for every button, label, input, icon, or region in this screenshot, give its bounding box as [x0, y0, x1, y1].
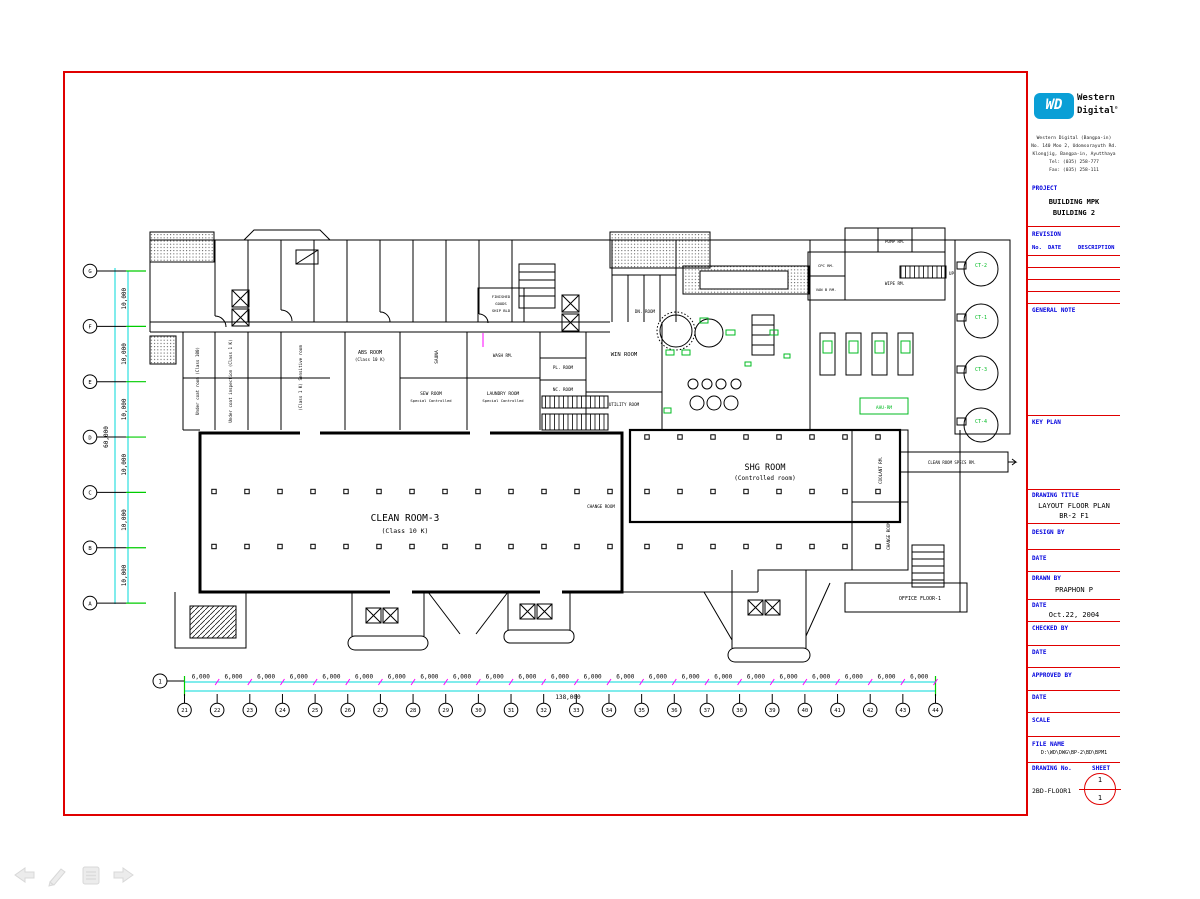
svg-text:6,000: 6,000 [910, 674, 928, 681]
svg-text:6,000: 6,000 [420, 674, 438, 681]
svg-text:24: 24 [279, 708, 286, 714]
svg-text:6,000: 6,000 [551, 674, 569, 681]
svg-text:37: 37 [704, 708, 711, 714]
svg-text:6,000: 6,000 [224, 674, 242, 681]
svg-text:34: 34 [606, 708, 613, 714]
svg-text:D: D [88, 435, 91, 441]
drawing-no-label: DRAWING No. [1032, 765, 1072, 772]
svg-text:6,000: 6,000 [486, 674, 504, 681]
hatched-areas [150, 232, 946, 638]
address-line: No. 140 Moo 2, Udomsorayuth Rd. [1028, 143, 1120, 151]
svg-text:6,000: 6,000 [747, 674, 765, 681]
svg-text:26: 26 [344, 708, 351, 714]
floor-plan-svg: 138,000 60,000 1 GFEDCBA10,00010,00010,0… [0, 0, 1200, 899]
room-label-abs: ABS ROOM [358, 350, 382, 356]
room-label-pump: PUMP RM. [885, 239, 905, 244]
document-icon[interactable] [76, 862, 106, 890]
svg-text:A: A [88, 601, 92, 607]
svg-text:F: F [88, 325, 91, 331]
key-plan-label: KEY PLAN [1032, 419, 1061, 426]
svg-text:E: E [88, 380, 91, 386]
svg-text:6,000: 6,000 [682, 674, 700, 681]
label-cr-specs: CLEAN ROOM SPECS RM. [928, 460, 976, 465]
room-label-sew-sub: Special Controlled [410, 398, 451, 403]
brand-line1: Western [1077, 93, 1117, 103]
room-label-finished-1: FINISHED [492, 294, 511, 299]
room-label-under-coat-room: Under coat room (Class 100) [195, 347, 200, 415]
svg-text:42: 42 [867, 708, 874, 714]
back-arrow-icon[interactable] [8, 862, 38, 890]
svg-text:6,000: 6,000 [649, 674, 667, 681]
row-bubble-1-label: 1 [158, 679, 162, 686]
room-label-pl: PL. ROOM [553, 365, 574, 370]
room-label-win: WIN ROOM [611, 352, 638, 358]
project-line1: BUILDING MPK [1028, 198, 1120, 206]
svg-text:21: 21 [181, 708, 188, 714]
room-label-cpc: CPC RM. [818, 263, 834, 268]
wd-logo: WD [1034, 93, 1074, 119]
svg-text:44: 44 [932, 708, 939, 714]
drawing-no-value: 2BD-FLOOR1 [1032, 787, 1071, 795]
general-note-label: GENERAL NOTE [1032, 307, 1075, 314]
column-markers [212, 435, 880, 549]
checked-by-label: CHECKED BY [1032, 625, 1068, 632]
label-ahu-rm: AHU-RM [876, 405, 893, 411]
svg-text:C: C [88, 491, 91, 497]
room-label-finished-2: GOODS [495, 301, 507, 306]
svg-text:40: 40 [802, 708, 809, 714]
brand-line2: Digital® [1077, 103, 1117, 116]
room-label-change-mid: CHANGE ROOM [587, 504, 615, 509]
dim-total-bottom: 138,000 [555, 694, 581, 701]
room-label-van-b: VAN B RM. [816, 287, 837, 292]
svg-text:6,000: 6,000 [584, 674, 602, 681]
room-label-finished-3: SHIP BLD [492, 308, 511, 313]
room-label-sensitive: (Class 1 K) Sensitive room [298, 345, 303, 411]
svg-text:41: 41 [834, 708, 841, 714]
svg-text:6,000: 6,000 [877, 674, 895, 681]
room-label-office: OFFICE FLOOR-1 [899, 596, 941, 602]
svg-text:6,000: 6,000 [616, 674, 634, 681]
tank-label-ct3: CT-3 [975, 367, 987, 373]
project-line2: BUILDING 2 [1028, 209, 1120, 217]
sheet-number-bottom: 1 [1085, 794, 1115, 802]
room-label-nc: NC. ROOM [553, 387, 574, 392]
svg-text:6,000: 6,000 [322, 674, 340, 681]
rev-col-no: No. [1032, 245, 1042, 251]
room-label-wipe: WIPE RM. [885, 281, 905, 286]
room-label-under-coat-insp: Under coat inspection (Class 1 K) [228, 339, 233, 422]
room-label-shg-sub: (Controlled room) [734, 475, 795, 482]
svg-text:10,000: 10,000 [121, 343, 128, 365]
svg-text:29: 29 [442, 708, 449, 714]
date-label-4: DATE [1032, 694, 1046, 701]
svg-text:27: 27 [377, 708, 384, 714]
label-up: UP [949, 271, 955, 276]
drawn-date-value: Oct.22, 2004 [1028, 611, 1120, 619]
room-label-dn: DN. ROOM [635, 309, 656, 314]
svg-text:6,000: 6,000 [290, 674, 308, 681]
sheet-label: SHEET [1092, 765, 1110, 772]
svg-text:22: 22 [214, 708, 221, 714]
svg-text:10,000: 10,000 [121, 564, 128, 586]
room-label-clean-room: CLEAN ROOM-3 [371, 513, 440, 524]
svg-text:10,000: 10,000 [121, 454, 128, 476]
tank-label-ct1: CT-1 [975, 315, 987, 321]
svg-text:6,000: 6,000 [257, 674, 275, 681]
svg-text:6,000: 6,000 [192, 674, 210, 681]
sheet-number-circle: 1 1 [1084, 773, 1116, 805]
forward-arrow-icon[interactable] [110, 862, 140, 890]
svg-text:6,000: 6,000 [388, 674, 406, 681]
address-line: Western Digital (Bangpa-in) [1028, 135, 1120, 143]
svg-text:G: G [88, 269, 91, 275]
svg-text:6,000: 6,000 [518, 674, 536, 681]
tank-label-ct4: CT-4 [975, 419, 987, 425]
brand-name: Western Digital® [1077, 93, 1117, 116]
viewer-toolbar [8, 862, 158, 892]
svg-text:35: 35 [638, 708, 645, 714]
svg-text:28: 28 [410, 708, 417, 714]
svg-text:43: 43 [900, 708, 907, 714]
pencil-icon[interactable] [42, 862, 72, 890]
tank-label-ct2: CT-2 [975, 263, 987, 269]
svg-text:38: 38 [736, 708, 743, 714]
file-name-label: FILE NAME [1032, 741, 1065, 748]
approved-by-label: APPROVED BY [1032, 672, 1072, 679]
date-label-2: DATE [1032, 602, 1046, 609]
revision-label: REVISION [1032, 231, 1061, 238]
svg-text:10,000: 10,000 [121, 287, 128, 309]
drawing-title-line2: BR-2 F1 [1028, 512, 1120, 520]
svg-text:10,000: 10,000 [121, 398, 128, 420]
room-label-change-right: CHANGE ROOM [886, 522, 891, 550]
address-line: Klongjig, Bangpa-in, Ayutthaya [1028, 151, 1120, 159]
svg-text:36: 36 [671, 708, 678, 714]
svg-text:6,000: 6,000 [453, 674, 471, 681]
room-label-wash: WASH RM. [493, 353, 513, 358]
rev-col-desc: DESCRIPTION [1078, 245, 1114, 251]
date-label-1: DATE [1032, 555, 1046, 562]
svg-text:6,000: 6,000 [845, 674, 863, 681]
svg-text:23: 23 [246, 708, 253, 714]
scale-label: SCALE [1032, 717, 1050, 724]
rev-col-date: DATE [1048, 245, 1061, 251]
title-block: WD Western Digital® Western Digital (Ban… [1026, 71, 1120, 816]
room-label-shg: SHG ROOM [745, 463, 786, 473]
room-label-clean-room-class: (Class 10 K) [382, 527, 429, 535]
svg-text:33: 33 [573, 708, 580, 714]
svg-text:25: 25 [312, 708, 319, 714]
room-label-laundry: LAUNDRY ROOM [487, 391, 520, 397]
sheet-number-top: 1 [1085, 776, 1115, 784]
address-line: Fax: (035) 258-111 [1028, 167, 1120, 175]
date-label-3: DATE [1032, 649, 1046, 656]
svg-text:6,000: 6,000 [355, 674, 373, 681]
svg-text:30: 30 [475, 708, 482, 714]
drawn-by-label: DRAWN BY [1032, 575, 1061, 582]
svg-text:6,000: 6,000 [812, 674, 830, 681]
file-name-value: D:\WD\DWG\BP-2\BD\BPM1 [1028, 750, 1120, 756]
room-label-abs-class: (Class 10 K) [355, 357, 385, 362]
svg-text:31: 31 [508, 708, 515, 714]
svg-text:32: 32 [540, 708, 547, 714]
design-by-label: DESIGN BY [1032, 529, 1065, 536]
drawing-sheet: 138,000 60,000 1 GFEDCBA10,00010,00010,0… [0, 0, 1200, 899]
drawing-title-label: DRAWING TITLE [1032, 492, 1079, 499]
building-walls [150, 228, 1016, 662]
svg-text:39: 39 [769, 708, 776, 714]
drawing-title-line1: LAYOUT FLOOR PLAN [1028, 502, 1120, 510]
room-label-coolant: COOLANT RM. [878, 456, 883, 484]
room-label-utility: UTILITY ROOM [609, 402, 640, 407]
svg-text:B: B [88, 546, 92, 552]
svg-text:6,000: 6,000 [714, 674, 732, 681]
room-label-sauna: SAUNA [434, 350, 440, 364]
room-label-laundry-sub: Special Controlled [482, 398, 523, 403]
room-label-sew: SEW ROOM [420, 391, 442, 397]
drawn-by-value: PRAPHON P [1028, 586, 1120, 594]
project-label: PROJECT [1032, 185, 1057, 192]
svg-text:6,000: 6,000 [780, 674, 798, 681]
address-line: Tel: (035) 258-777 [1028, 159, 1120, 167]
svg-text:10,000: 10,000 [121, 509, 128, 531]
